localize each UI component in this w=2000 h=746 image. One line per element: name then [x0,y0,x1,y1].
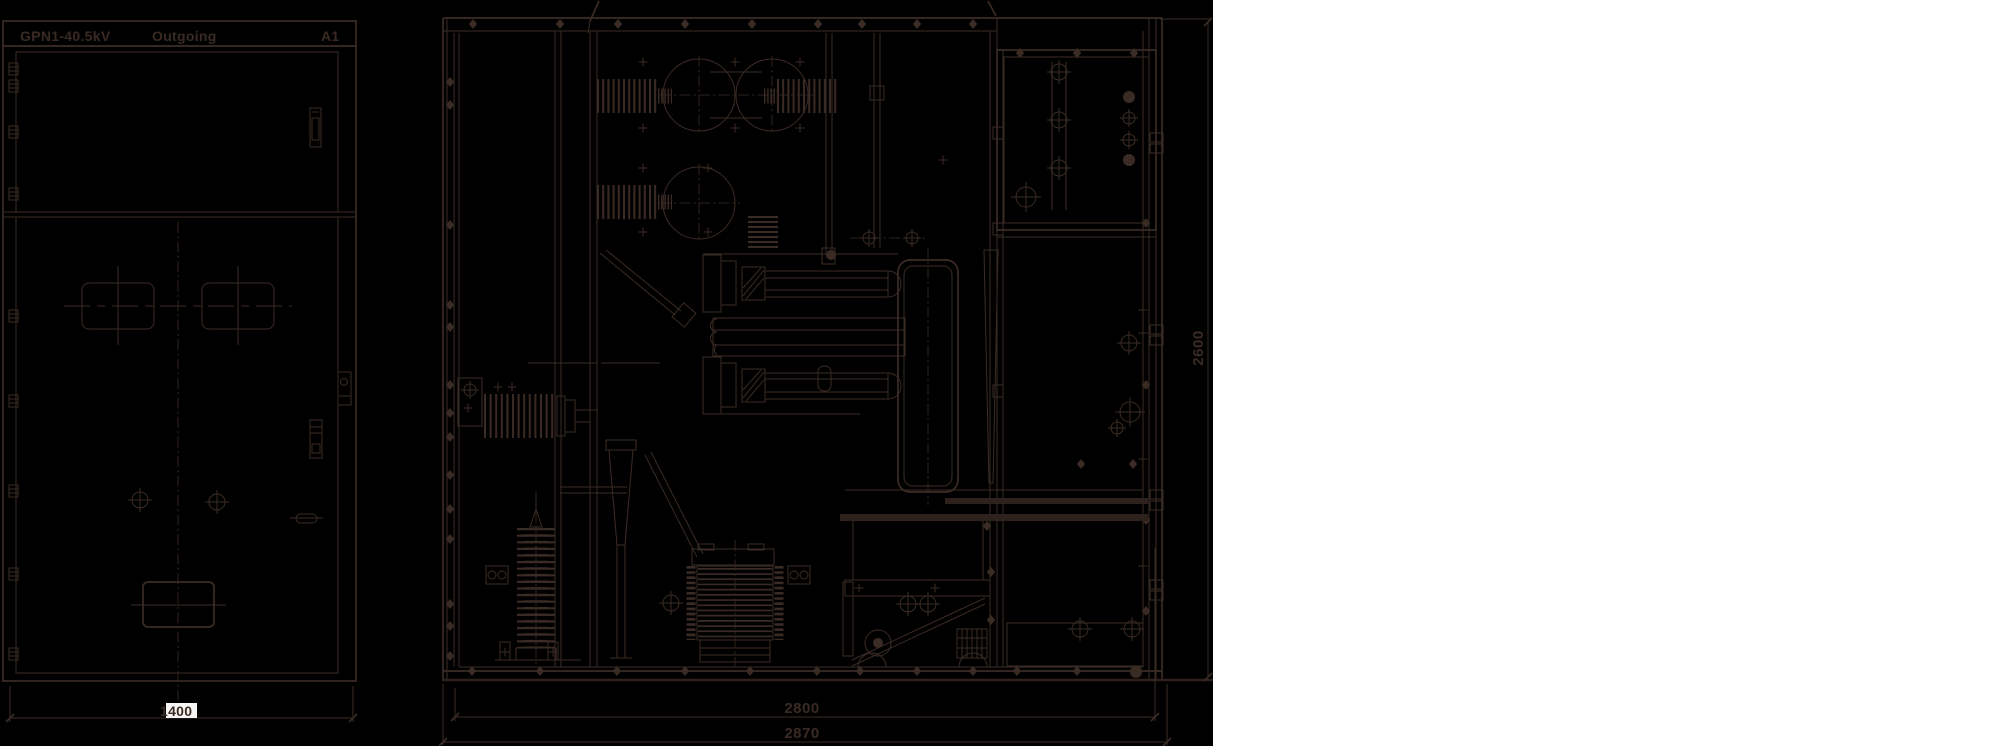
truck-grid-box [957,629,987,658]
panel-code: A1 [321,28,340,44]
height-dimension-value: 2600 [1190,330,1207,365]
switchgear-drawing: GPN1-40.5kV Outgoing A1 [0,0,2000,746]
drawing-canvas [0,0,1213,746]
switchgear-drawing-page: GPN1-40.5kV Outgoing A1 [0,0,2000,746]
inner-width-value: 2800 [784,700,819,717]
panel-title: GPN1-40.5kV [20,28,111,44]
overall-width-value: 2870 [784,725,819,742]
front-width-value: 1400 [160,703,192,719]
panel-subtitle: Outgoing [152,28,217,44]
